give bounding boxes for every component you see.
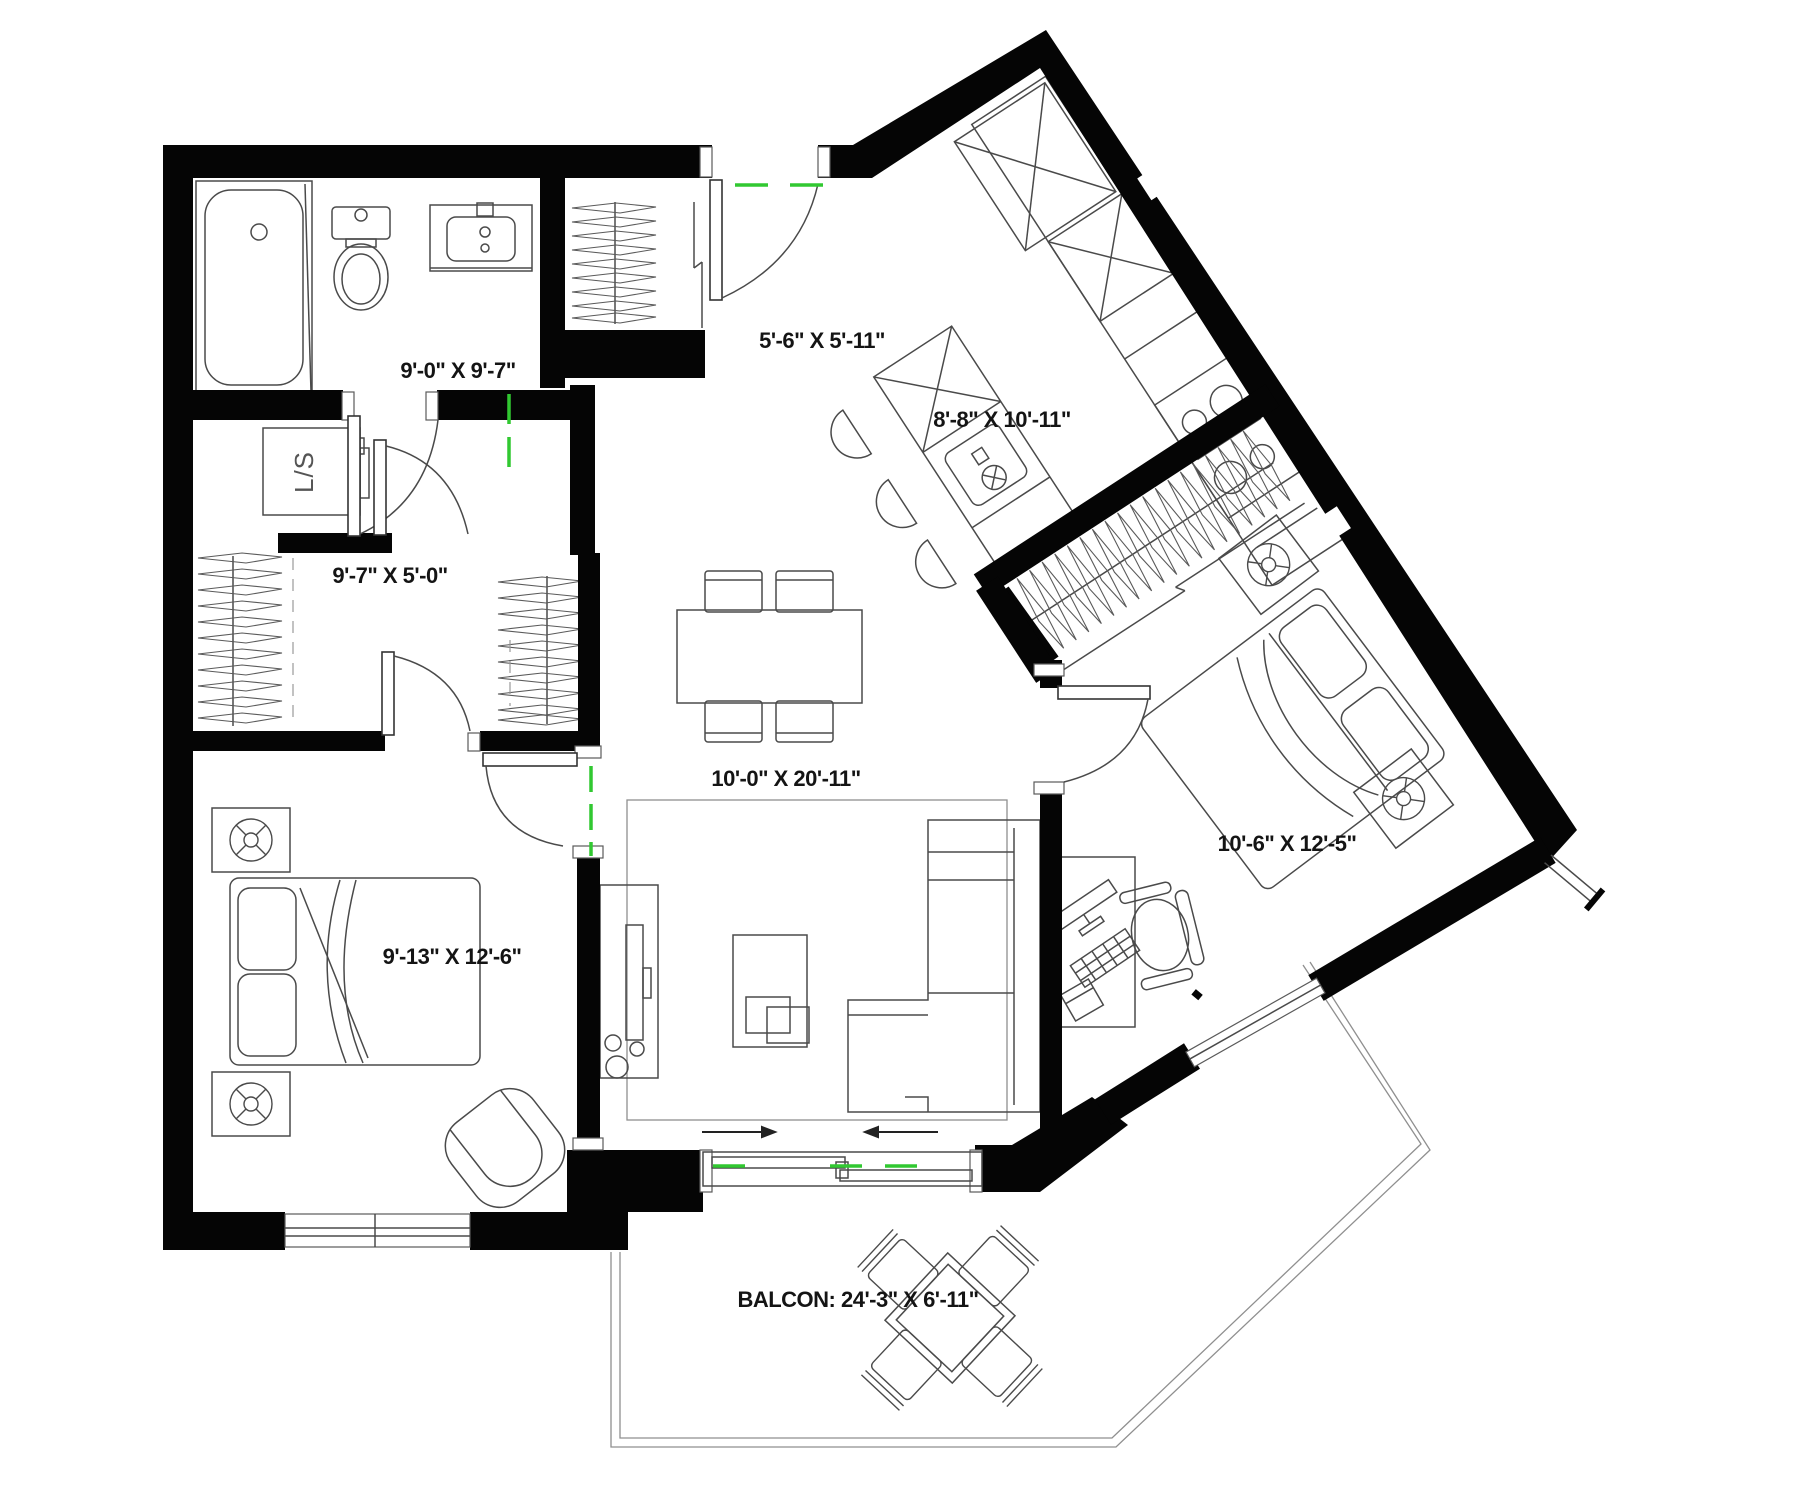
office-chair — [1119, 878, 1208, 991]
bedroom-left-label: 9'-13" X 12'-6" — [383, 944, 522, 969]
patio-chair — [861, 1328, 943, 1410]
laundry-door[interactable] — [374, 440, 468, 535]
laundry-label: L/S — [289, 451, 319, 493]
floor-plan-page: 9'-0" X 9'-7" L/S 9'-7" X 5'-0" 5'-6" X … — [0, 0, 1800, 1500]
shower-screen — [305, 184, 311, 392]
bedroom-left-furniture — [212, 808, 577, 1219]
nightstand — [1354, 749, 1454, 848]
blanket-fold — [327, 880, 346, 1063]
pillow — [238, 974, 296, 1056]
island-sink — [942, 421, 1029, 508]
patio-set — [806, 1174, 1094, 1462]
living-label: 10'-0" X 20'-11" — [711, 766, 860, 791]
openings — [285, 147, 1603, 1247]
bathtub-outline — [196, 181, 312, 394]
walls — [163, 30, 1577, 1250]
tv-console — [600, 885, 658, 1078]
dining-table — [677, 610, 862, 703]
bedroom-left-window — [285, 1214, 470, 1247]
blanket-fold — [1239, 640, 1380, 813]
bathroom-door[interactable] — [348, 416, 438, 536]
bedroom-left-door[interactable] — [483, 753, 577, 846]
patio-table — [885, 1253, 1015, 1383]
lamp-icon — [230, 1083, 272, 1125]
floor-plan-drawing: 9'-0" X 9'-7" L/S 9'-7" X 5'-0" 5'-6" X … — [0, 0, 1800, 1500]
bar-stools — [821, 410, 956, 598]
dining-chair — [705, 571, 833, 742]
patio-chair — [960, 1325, 1042, 1407]
dining-set — [677, 571, 862, 742]
tv-icon — [626, 925, 643, 1040]
balcony-label: BALCON: 24'-3" X 6'-11" — [737, 1287, 978, 1312]
bathroom-label: 9'-0" X 9'-7" — [400, 358, 515, 383]
nightstand — [212, 808, 290, 872]
desk — [1055, 857, 1135, 1027]
keyboard-icon — [1070, 929, 1139, 987]
sectional-sofa — [848, 820, 1040, 1112]
rug — [627, 800, 1007, 1120]
lamp-icon — [230, 819, 272, 861]
desk-area — [1042, 857, 1208, 1027]
bedroom-right-label: 10'-6" X 12'-5" — [1218, 831, 1357, 856]
bedroom-right-door[interactable] — [1058, 686, 1150, 782]
survey-dot — [1191, 989, 1202, 1000]
sliding-door-direction-arrows — [702, 1127, 938, 1137]
kitchen-counter — [952, 76, 1346, 598]
balcony-sliding-door[interactable] — [702, 1127, 982, 1186]
coffee-table — [733, 935, 809, 1047]
walkin-closet-label: 9'-7" X 5'-0" — [332, 563, 447, 588]
armchair — [433, 1077, 577, 1220]
balcony — [611, 962, 1430, 1462]
vanity-sink — [430, 203, 532, 271]
kitchen-label: 8'-8" X 10'-11" — [933, 407, 1071, 432]
bathtub-drain-icon — [251, 224, 267, 240]
entry-label: 5'-6" X 5'-11" — [759, 328, 885, 353]
entry-door[interactable] — [710, 180, 818, 300]
nightstand — [212, 1072, 290, 1136]
bed — [230, 878, 480, 1065]
toilet-icon — [332, 207, 390, 310]
bedroom-right-window — [1186, 978, 1325, 1067]
walkin-closet-door[interactable] — [382, 652, 470, 735]
cpu-tower-icon — [1061, 979, 1104, 1021]
room-labels: 9'-0" X 9'-7" L/S 9'-7" X 5'-0" 5'-6" X … — [289, 328, 1356, 1312]
pillow — [238, 888, 296, 970]
bathtub-inner — [205, 190, 303, 385]
lamp-icon — [1239, 535, 1298, 594]
pillow — [1275, 600, 1371, 702]
living-room-furniture — [600, 800, 1040, 1120]
entry-closet — [572, 202, 702, 328]
